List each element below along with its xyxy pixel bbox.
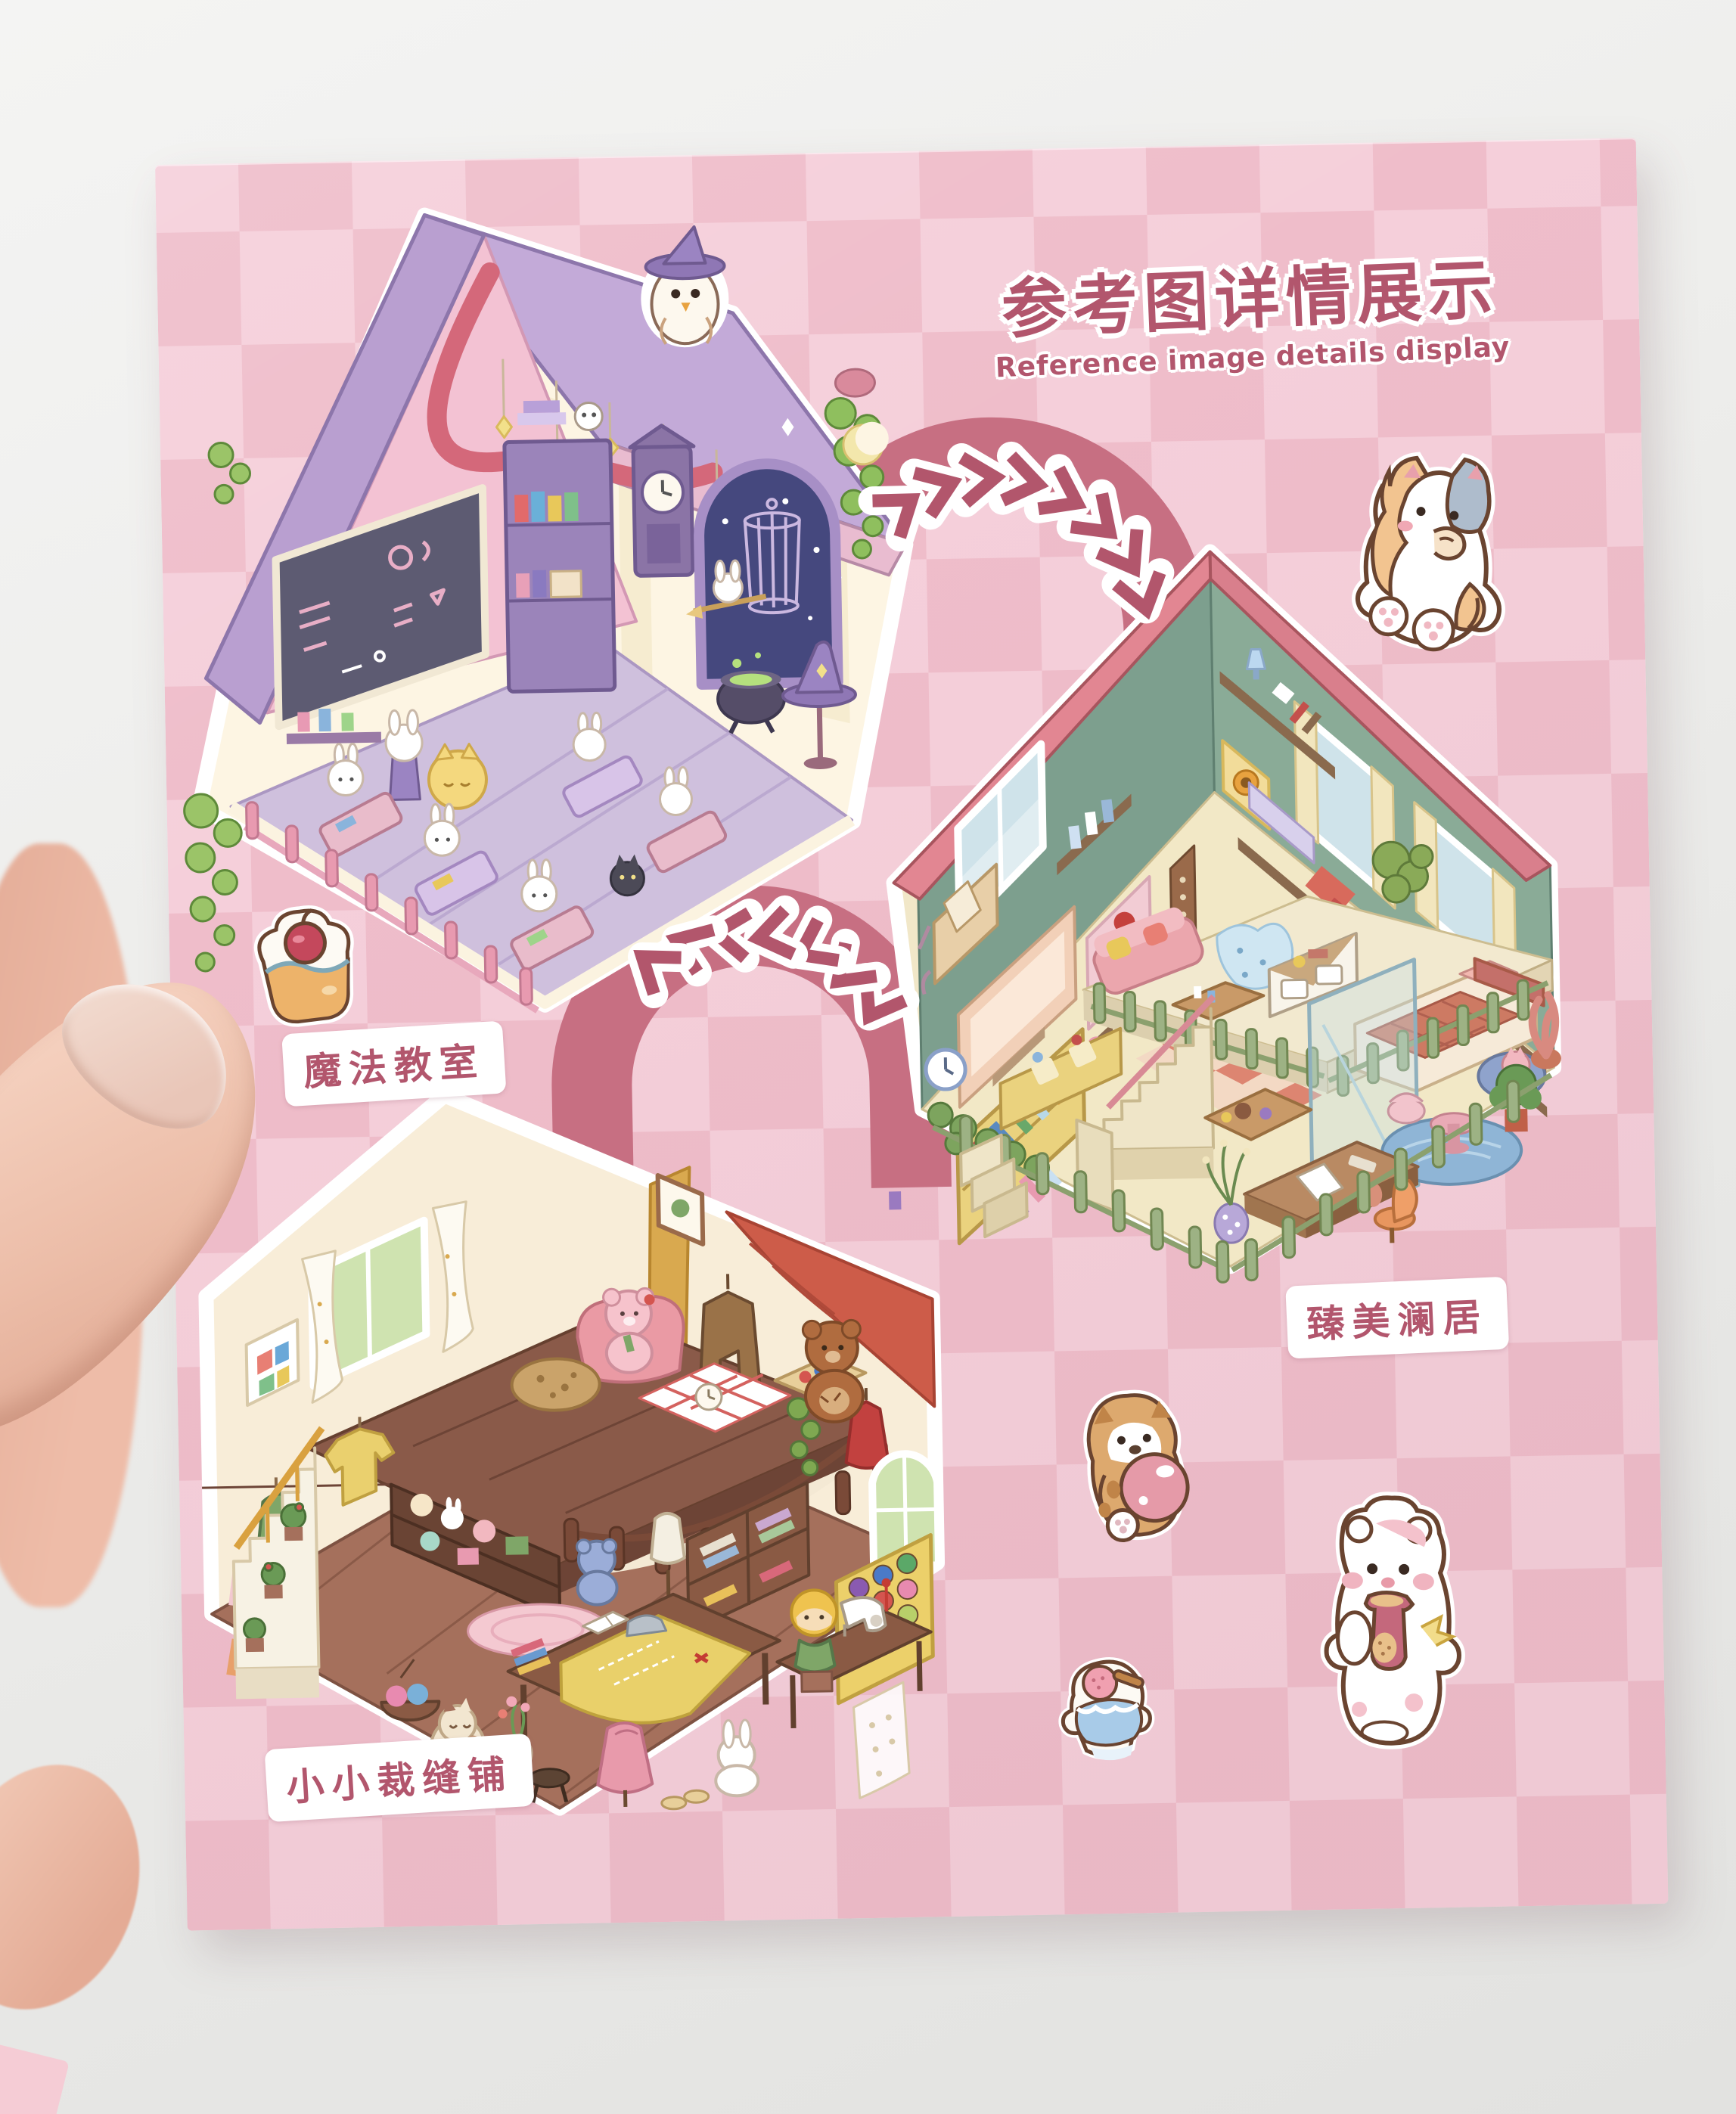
arrow-chevrons [155, 138, 1668, 1930]
photo-background: 参考图详情展示 Reference image details display … [0, 0, 1736, 2114]
sticker-sheet-card: 参考图详情展示 Reference image details display … [155, 138, 1668, 1930]
finger-tip [0, 1739, 170, 2035]
forward-chevrons [871, 452, 1168, 619]
pink-paper-corner [0, 2043, 70, 2114]
back-chevrons [627, 907, 905, 1032]
